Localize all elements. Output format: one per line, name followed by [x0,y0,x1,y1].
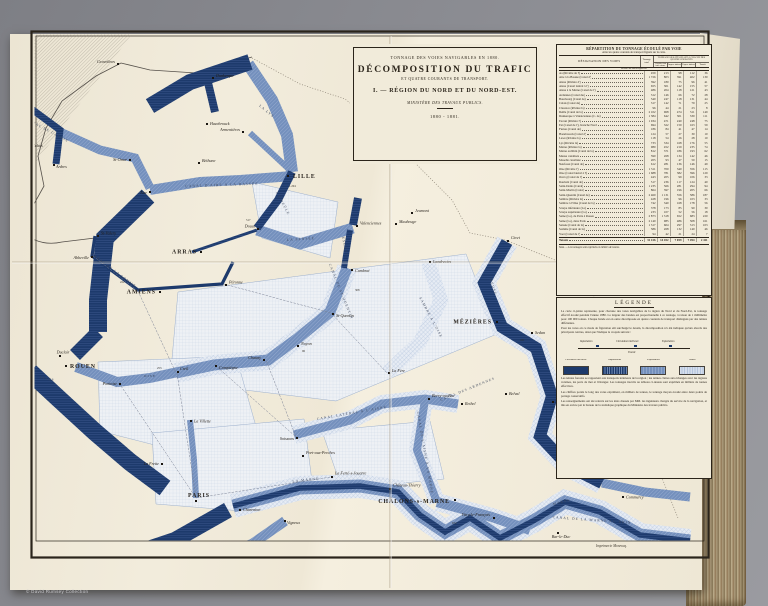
diagram-label-transit: Transit [628,351,635,354]
city-label: Vigneux [287,520,300,525]
swatch-label: Transit [679,359,705,365]
city-dot [59,355,61,357]
city-dot [149,191,151,193]
city-dot [287,175,289,177]
city-label: Creil [180,366,189,371]
waterway-label: CANAL DES ARDENNES [440,376,496,402]
diagram-tick [634,345,637,348]
legend-swatches: Circulation intérieure Importations Expo… [563,359,705,375]
city-label: Aire [139,190,147,195]
legend-paragraphs-bottom: Les teintes foncées se rapportent aux tr… [561,377,707,407]
swatch-transit: Transit [679,359,705,375]
city-label: Belval [509,391,520,396]
col-subheader: Expor- tations [682,63,696,67]
diagram-label-interior: Circulation intérieure [616,340,639,343]
ministry-line: MINISTÈRE DES TRAVAUX PUBLICS. [354,101,536,105]
city-dot [129,159,131,161]
city-dot [195,500,197,502]
city-dot [356,225,358,227]
col-subheader: Transit [696,63,709,67]
diagram-label-import: Importation [580,340,592,343]
city-dot [242,131,244,133]
col-subheader: Circula- tion inté- rieure [654,63,668,67]
city-label: Calais [32,143,43,148]
tonnage-figure: 431 [520,338,525,342]
city-dot [507,240,509,242]
city-dot [206,123,208,125]
map-title: DÉCOMPOSITION DU TRAFIC [354,65,536,75]
diagram-line [578,348,690,349]
city-label: La Fère [391,368,405,373]
city-dot [297,345,299,347]
city-label: Chauny [248,355,261,360]
city-dot [505,393,507,395]
col-total: Tonnage total [641,56,654,67]
swatch-interior: Circulation intérieure [563,359,589,375]
city-dot [395,223,397,225]
city-dot [177,371,179,373]
city-dot [198,162,200,164]
city-label-major: LILLE [293,174,316,180]
city-label: Valenciennes [360,221,382,226]
legend-diagram: Importation Circulation intérieure Expor… [574,337,694,357]
city-dot [454,499,456,501]
tonnage-table: RÉPARTITION DU TONNAGE ÉCOULÉ PAR VOIE e… [556,44,712,296]
city-label: Jeumont [415,208,430,213]
city-dot [65,365,67,367]
tonnage-figure: 517 [246,218,251,222]
swatch-color-medium [640,366,666,375]
city-label: Gravelines [97,59,115,64]
city-dot [119,383,121,385]
collection-caption: © David Rumsey Collection [26,589,88,594]
city-dot [257,228,259,230]
city-label: Péronne [228,280,243,285]
date-range: 1880 - 1881. [354,114,536,119]
swatch-label: Exportations [640,359,666,365]
col-group: TONNAGE SE RATTACHANT À CHACUN DES QUATR… [654,56,709,67]
city-dot [493,517,495,519]
legend: LÉGENDE La carte ci-jointe représente, p… [556,297,712,479]
swatch-color-dark [563,366,589,375]
table-header: DÉSIGNATION DES VOIES Tonnage total TONN… [559,56,709,68]
city-label: Port-aux-Perches [305,450,335,455]
city-label: Dunkerque [215,73,234,78]
swatch-exports: Exportations [640,359,666,375]
printer-credit: Imprimerie Monrocq. [596,544,627,548]
city-label: St-Omer [113,157,127,162]
city-label: Charenton [243,507,260,512]
city-dot [239,509,241,511]
city-dot [215,365,217,367]
city-dot [496,321,498,323]
coastline-somme-bay [22,216,95,243]
city-label: Bar-le-Duc [552,534,571,539]
city-label-major: ARRAS [172,250,197,256]
city-dot [552,401,554,403]
legend-paragraph: Les teintes foncées se rapportent aux tr… [561,377,707,389]
city-label: Compiègne [219,365,238,370]
city-dot [212,77,214,79]
city-label-major: ROUEN [70,364,96,370]
city-dot [531,332,533,334]
city-label: Soissons [280,436,295,441]
legend-paragraph: Pour les voies où ce mode de figuration … [561,327,707,335]
swatch-label: Importations [602,359,628,365]
title-line-tonnage: TONNAGE DES VOIES NAVIGABLES EN 1880. [354,55,536,60]
diagram-tick [596,345,599,348]
city-dot [53,164,55,166]
table-row: Totaux31 41614 4527 0597 4942 411 [559,237,709,242]
city-label: Rethel [464,401,476,406]
city-label: Hazebrouck [209,121,230,126]
city-dot [331,476,333,478]
waterway-label: OISE [144,374,156,378]
diagram-label-export: Exportation [662,340,674,343]
region-title: I. — RÉGION DU NORD ET DU NORD-EST. [354,88,536,94]
col-designation: DÉSIGNATION DES VOIES [559,56,641,67]
table-row: Yser (Canal de l')944221247 [559,232,709,236]
tonnage-figure: 672 [452,521,457,525]
col-subheaders: Circula- tion inté- rieureImpor- tations… [654,63,709,67]
city-dot [296,437,298,439]
legend-paragraph: Les chiffres portés le long des voies ex… [561,391,707,399]
swatch-color-light [679,366,705,375]
city-dot [461,403,463,405]
city-label: Cambrai [355,268,370,273]
city-label: Givet [511,235,521,240]
city-dot [302,455,304,457]
city-label: Vitry-le-François [462,512,491,517]
city-dot [622,496,624,498]
legend-paragraph: Les renseignements ont été relevés sur l… [561,400,707,408]
city-label: Maubeuge [398,219,416,224]
tonnage-figure: 308 [355,288,360,292]
table-note: Nota. — Les tonnages sont exprimés en mi… [559,244,709,249]
city-label-major: AMIENS [127,290,156,296]
city-dot [428,398,430,400]
title-divider [437,108,453,109]
swatch-label: Circulation intérieure [563,359,589,365]
city-label: St-Valery [101,231,116,236]
legend-paragraph: La carte ci-jointe représente, pour chac… [561,310,707,326]
city-label: Douai [244,224,256,229]
city-label: Abbeville [73,255,90,260]
title-cartouche: TONNAGE DES VOIES NAVIGABLES EN 1880. DÉ… [353,47,537,161]
city-dot [351,269,353,271]
city-label: Sedan [535,330,545,335]
city-label: Béthune [202,158,216,163]
city-label: La Villette [193,419,211,424]
city-dot [284,520,286,522]
legend-paragraphs-top: La carte ci-jointe représente, pour chac… [561,310,707,335]
city-dot [117,63,119,65]
city-dot [332,313,334,315]
city-dot [200,251,202,253]
city-dot [190,420,192,422]
title-subtitle: ET QUATRE COURANTS DE TRANSPORT. [354,77,536,81]
table-rows: Aa (Rivière de l')4592139811236Aire à la… [559,71,709,242]
city-label: Commercy [626,495,644,500]
tonnage-figure: 1.204 [289,184,296,188]
city-label-major: MÉZIÈRES [453,318,492,326]
tonnage-figure: 96 [302,349,306,353]
tonnage-figure: 222 [120,280,125,284]
tonnage-figure: 253 [157,366,162,370]
city-dot [411,212,413,214]
city-label: Duclair [56,350,70,355]
col-group-label: TONNAGE SE RATTACHANT À CHACUN DES QUATR… [654,56,709,63]
swatch-imports: Importations [602,359,628,375]
city-label: Armentières [219,127,240,132]
city-label: Château-Thierry [393,483,421,488]
city-label: Ardres [55,164,67,169]
scanned-atlas-page: LILLEARRASAMIENSROUENPARISMÉZIÈRESCHÂLON… [0,0,768,606]
city-label-major: PARIS [188,493,210,499]
city-label: La Ferté-s-Jouarre [334,471,367,476]
city-dot [161,463,163,465]
legend-title: LÉGENDE [614,300,654,308]
city-dot [263,359,265,361]
city-label: La Frette [143,461,159,466]
city-label: Noyon [300,341,312,346]
city-dot [159,291,161,293]
city-label: Pontoise [102,381,118,386]
diagram-tick [669,345,672,348]
city-dot [225,284,227,286]
col-subheader: Impor- tations [668,63,682,67]
swatch-color-hatched [602,366,628,375]
city-dot [97,235,99,237]
